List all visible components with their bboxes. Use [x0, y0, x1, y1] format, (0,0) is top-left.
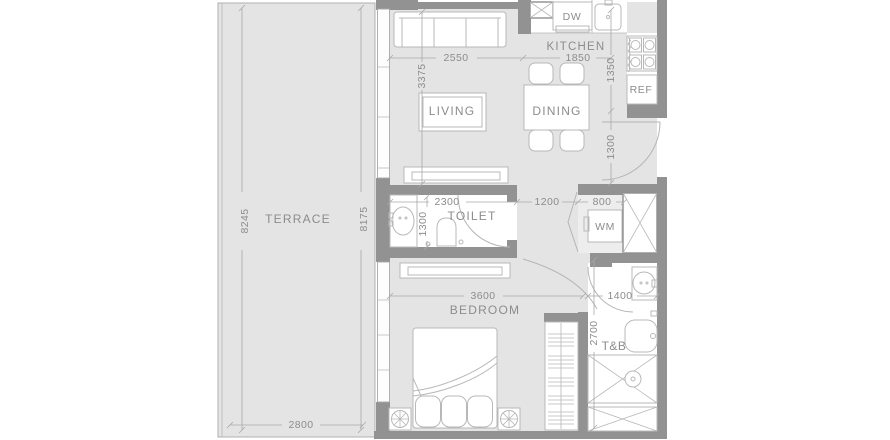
wall-segment	[657, 177, 667, 432]
pillow	[416, 396, 441, 427]
wall-segment	[627, 104, 667, 118]
wm-label: WM	[595, 221, 615, 233]
dim-tb-width: 1400	[608, 290, 633, 302]
wall-segment	[377, 185, 517, 195]
wall-segment	[376, 402, 390, 432]
wall-segment	[377, 247, 517, 258]
dim-kitchen-depth: 1350	[605, 58, 617, 83]
dim-terrace-width: 2800	[289, 419, 314, 431]
wall-segment	[418, 2, 520, 9]
floor-plan-drawing: TERRACE LIVING DINING KITCHEN TOILET BED…	[0, 0, 890, 440]
wall-segment	[507, 240, 517, 247]
living-label: LIVING	[429, 104, 476, 118]
bedside-decor	[389, 408, 411, 430]
dishwasher-label: DW	[563, 11, 582, 23]
pillow	[442, 396, 467, 427]
dining-chair	[560, 130, 584, 151]
dim-living-depth: 3375	[416, 64, 428, 89]
bedroom-cabinet	[400, 263, 510, 278]
window-strip	[378, 262, 390, 402]
wall-segment	[590, 253, 612, 267]
dim-tb-depth: 2700	[588, 321, 600, 346]
terrace-label: TERRACE	[265, 212, 331, 226]
wall-segment	[544, 313, 578, 322]
pillow	[468, 396, 493, 427]
dining-chair	[560, 63, 584, 84]
shower-drain	[625, 371, 641, 387]
tb-label: T&B	[602, 339, 627, 353]
dining-chair	[529, 130, 553, 151]
toilet-vanity	[390, 195, 417, 247]
dim-kitchen-width: 1850	[566, 52, 591, 64]
wall-segment	[374, 431, 667, 439]
toilet-label: TOILET	[448, 209, 497, 223]
wall-segment	[578, 312, 588, 432]
floor-plan: TERRACE LIVING DINING KITCHEN TOILET BED…	[0, 0, 890, 440]
window-strip	[378, 9, 390, 178]
dim-bedroom-width: 3600	[471, 290, 496, 302]
wall-segment	[657, 0, 667, 118]
fridge-label: REF	[630, 84, 653, 96]
dim-entry-depth: 1300	[605, 135, 617, 160]
wall-segment	[518, 0, 531, 34]
dining-chair	[529, 63, 553, 84]
dining-label: DINING	[532, 104, 581, 118]
dim-living-width: 2550	[444, 52, 469, 64]
bathtub	[625, 320, 657, 352]
kitchen-sink	[595, 4, 621, 30]
bedside-decor	[498, 408, 520, 430]
dim-interior-length: 8175	[358, 207, 370, 232]
bedroom-label: BEDROOM	[450, 303, 520, 317]
wall-segment	[507, 195, 517, 202]
wall-segment	[376, 0, 418, 10]
dim-wm-width: 800	[593, 196, 612, 208]
hall-cabinet	[404, 167, 508, 183]
dim-hall-width: 1200	[535, 196, 560, 208]
dim-toilet-width: 2300	[435, 196, 460, 208]
dim-terrace-length: 8245	[239, 209, 251, 234]
sofa	[394, 12, 506, 47]
dim-toilet-depth: 1300	[417, 212, 429, 237]
